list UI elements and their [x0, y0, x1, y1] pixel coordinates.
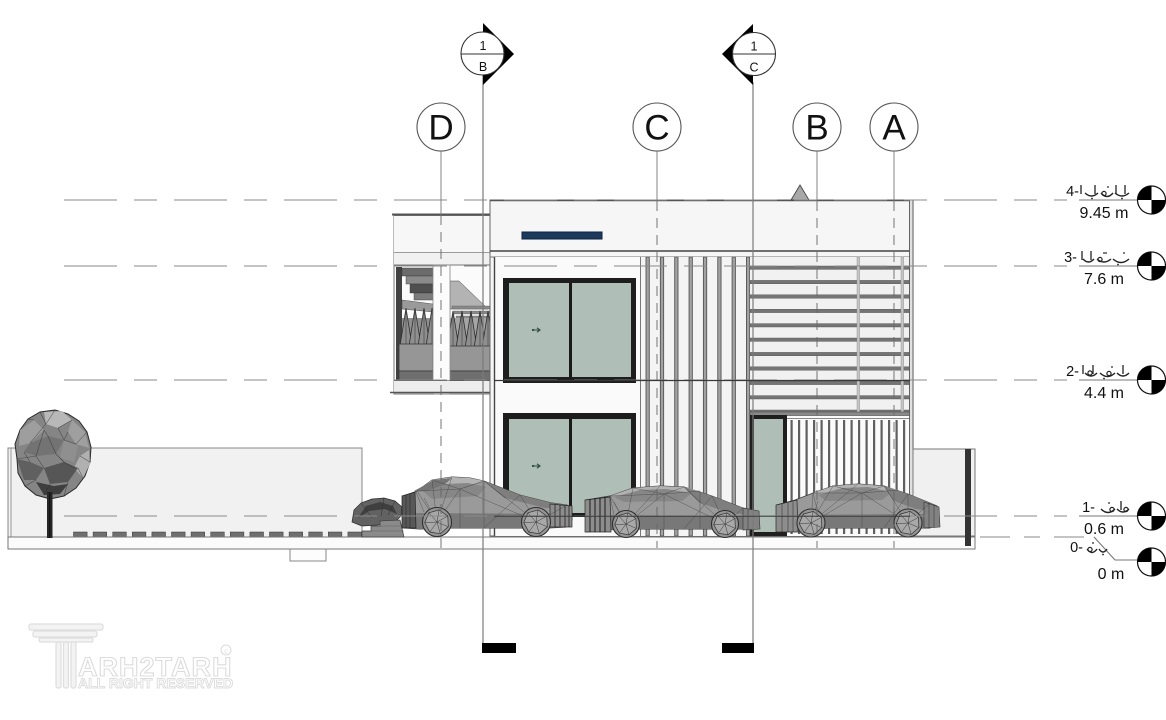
- svg-text:7.6 m: 7.6 m: [1084, 271, 1124, 288]
- svg-text:B: B: [479, 60, 487, 74]
- svg-text:1-: 1-: [1082, 500, 1095, 516]
- svg-text:A: A: [882, 109, 906, 148]
- svg-text:c: c: [224, 649, 228, 656]
- svg-text:1: 1: [480, 39, 487, 53]
- svg-text:3-: 3-: [1064, 250, 1077, 266]
- svg-text:0-: 0-: [1070, 540, 1083, 556]
- svg-text:9.45 m: 9.45 m: [1080, 205, 1129, 222]
- svg-text:4.4 m: 4.4 m: [1084, 385, 1124, 402]
- svg-text:ALL RIGHT RESERVED: ALL RIGHT RESERVED: [78, 675, 233, 691]
- svg-text:C: C: [749, 61, 758, 75]
- svg-text:0 m: 0 m: [1098, 566, 1125, 583]
- svg-text:4-: 4-: [1066, 184, 1079, 200]
- svg-text:2-: 2-: [1066, 364, 1079, 380]
- svg-text:C: C: [644, 109, 669, 148]
- svg-text:D: D: [428, 109, 453, 148]
- svg-text:0.6 m: 0.6 m: [1084, 521, 1124, 538]
- svg-text:1: 1: [751, 40, 758, 54]
- svg-text:B: B: [805, 109, 828, 148]
